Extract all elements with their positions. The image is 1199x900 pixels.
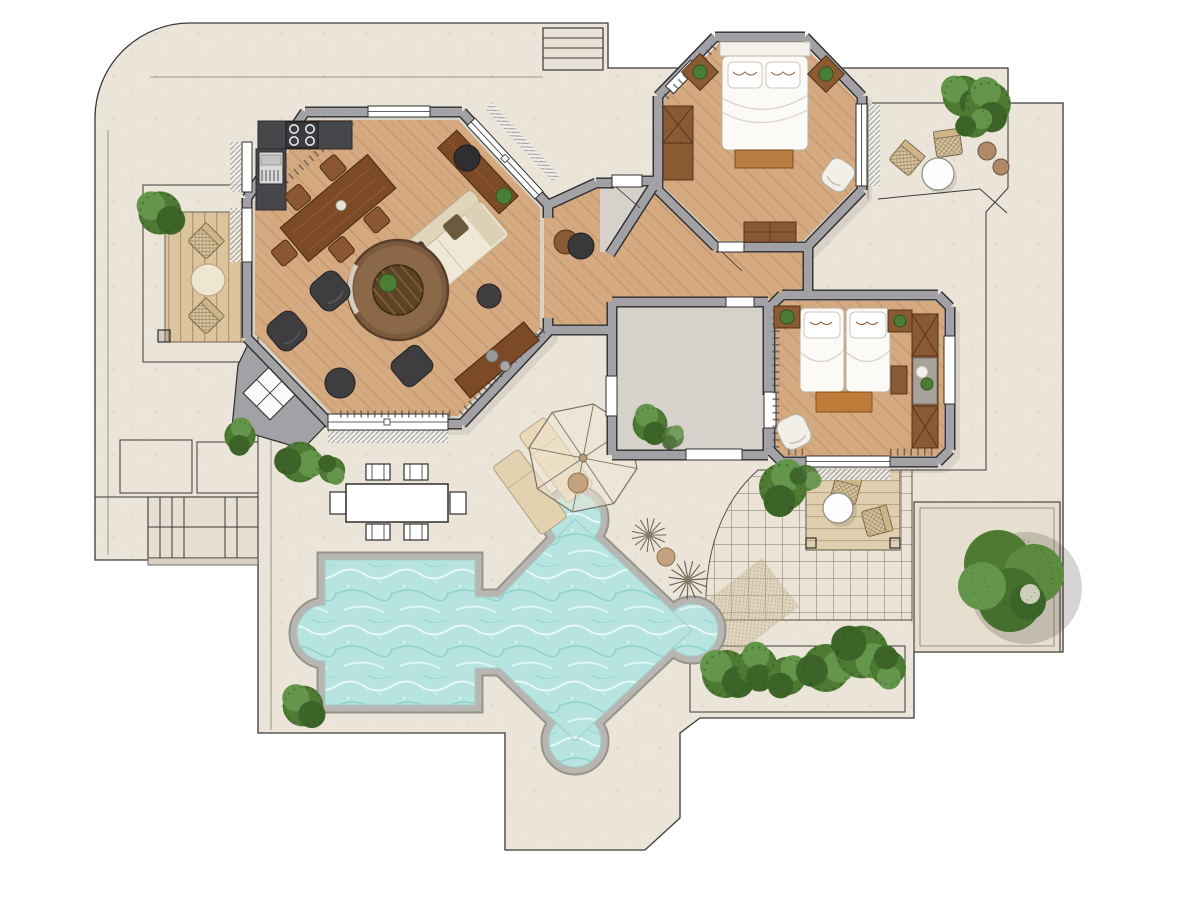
bed-bench xyxy=(816,392,872,412)
window xyxy=(944,336,955,404)
window xyxy=(606,376,617,416)
pouf xyxy=(325,368,355,398)
window xyxy=(242,142,252,192)
floor-plan-stage xyxy=(0,0,1199,900)
door xyxy=(726,297,754,307)
plant xyxy=(693,65,707,79)
pouf xyxy=(657,548,675,566)
decor xyxy=(500,361,510,371)
outdoor-chair xyxy=(366,464,390,480)
plant xyxy=(780,310,794,324)
window xyxy=(686,449,742,460)
pillow xyxy=(766,62,800,88)
bistro-table xyxy=(191,264,225,296)
outdoor-table xyxy=(346,484,448,522)
door xyxy=(718,242,744,252)
plant xyxy=(496,188,512,204)
outdoor-chair xyxy=(450,492,466,514)
outdoor-chair xyxy=(366,524,390,540)
entry-door xyxy=(612,175,642,187)
desk xyxy=(891,366,907,394)
desk-chair xyxy=(454,145,480,171)
outdoor-chair xyxy=(330,492,346,514)
pouf xyxy=(568,473,588,493)
decor xyxy=(486,350,498,362)
pillow xyxy=(850,312,886,338)
pergola-post xyxy=(158,330,170,342)
stairs-north xyxy=(543,28,603,70)
outdoor-chair xyxy=(404,464,428,480)
floor-plan-canvas xyxy=(0,0,1199,900)
bed-bench xyxy=(735,150,793,168)
door xyxy=(764,392,776,428)
stool xyxy=(568,233,594,259)
round-table xyxy=(922,158,954,190)
pillow xyxy=(804,312,840,338)
stairs-southwest xyxy=(148,497,258,565)
headboard xyxy=(720,42,810,56)
plant-pot xyxy=(993,159,1009,175)
plant xyxy=(921,378,933,390)
window xyxy=(242,208,252,262)
plant xyxy=(819,67,833,81)
outdoor-chair xyxy=(404,524,428,540)
pouf xyxy=(477,284,501,308)
plant xyxy=(894,315,906,327)
pillow xyxy=(728,62,762,88)
plant-pot xyxy=(978,142,996,160)
round-table xyxy=(823,493,853,523)
plant xyxy=(379,274,397,292)
